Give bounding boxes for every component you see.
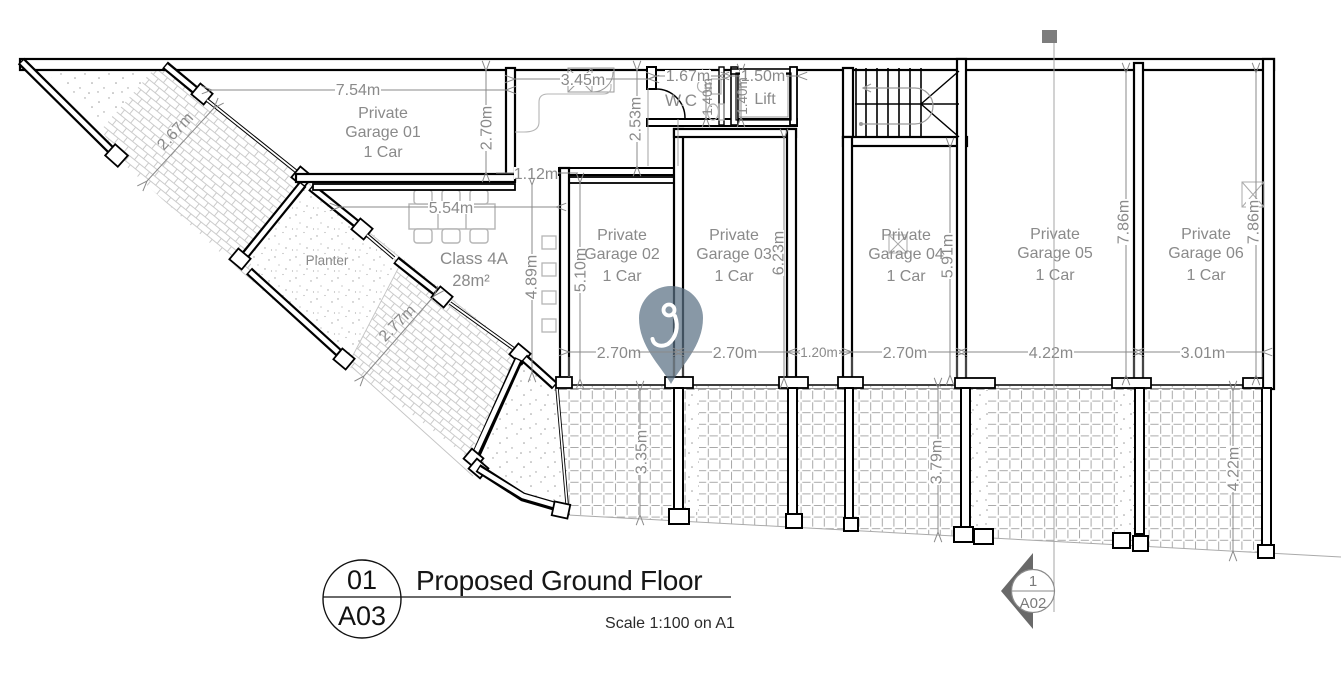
svg-text:2.70m: 2.70m — [883, 345, 927, 362]
svg-text:W.C: W.C — [665, 91, 697, 110]
svg-text:7.54m: 7.54m — [336, 82, 380, 99]
svg-text:4.89m: 4.89m — [524, 255, 541, 299]
svg-text:Proposed Ground Floor: Proposed Ground Floor — [416, 565, 702, 596]
svg-text:7.86m: 7.86m — [1246, 200, 1263, 244]
svg-text:5.54m: 5.54m — [429, 200, 473, 217]
svg-text:6.23m: 6.23m — [771, 231, 788, 275]
svg-text:Lift: Lift — [754, 91, 776, 108]
svg-text:3.45m: 3.45m — [561, 72, 605, 89]
svg-text:A02: A02 — [1020, 595, 1047, 612]
svg-text:Garage 03: Garage 03 — [696, 246, 772, 263]
svg-text:01: 01 — [347, 565, 377, 595]
svg-text:Private: Private — [1030, 226, 1080, 243]
svg-text:2.70m: 2.70m — [597, 345, 641, 362]
svg-text:Private: Private — [1181, 226, 1231, 243]
svg-text:1 Car: 1 Car — [886, 268, 926, 285]
svg-text:1.40m: 1.40m — [700, 78, 715, 116]
svg-text:Garage 02: Garage 02 — [584, 246, 660, 263]
svg-text:Garage 06: Garage 06 — [1168, 245, 1244, 262]
svg-text:1: 1 — [1029, 573, 1037, 590]
svg-text:Garage 01: Garage 01 — [345, 124, 421, 141]
svg-text:4.22m: 4.22m — [1226, 447, 1243, 491]
svg-text:Class 4A: Class 4A — [440, 249, 509, 268]
svg-text:1.40m: 1.40m — [735, 77, 750, 115]
svg-text:Scale 1:100 on A1: Scale 1:100 on A1 — [605, 615, 735, 632]
svg-text:2.70m: 2.70m — [479, 106, 496, 150]
svg-text:Private: Private — [597, 227, 647, 244]
svg-text:1 Car: 1 Car — [1035, 267, 1075, 284]
svg-text:1.12m: 1.12m — [514, 166, 558, 183]
svg-text:Private: Private — [358, 105, 408, 122]
svg-text:4.22m: 4.22m — [1029, 345, 1073, 362]
svg-text:A03: A03 — [338, 601, 386, 631]
svg-text:Private: Private — [881, 227, 931, 244]
svg-text:1 Car: 1 Car — [1186, 267, 1226, 284]
svg-text:1 Car: 1 Car — [602, 268, 642, 285]
svg-text:1 Car: 1 Car — [714, 268, 754, 285]
svg-text:2.70m: 2.70m — [713, 345, 757, 362]
svg-text:1.20m: 1.20m — [800, 345, 838, 360]
svg-text:3.79m: 3.79m — [929, 440, 946, 484]
svg-text:3.35m: 3.35m — [634, 430, 651, 474]
svg-text:1 Car: 1 Car — [363, 144, 403, 161]
svg-text:Planter: Planter — [306, 253, 349, 268]
svg-text:Garage 05: Garage 05 — [1017, 245, 1093, 262]
svg-text:28m²: 28m² — [452, 272, 490, 290]
svg-text:Garage 04: Garage 04 — [868, 246, 944, 263]
svg-text:7.86m: 7.86m — [1116, 200, 1133, 244]
svg-text:3.01m: 3.01m — [1181, 345, 1225, 362]
svg-text:Private: Private — [709, 227, 759, 244]
svg-text:2.53m: 2.53m — [628, 97, 645, 141]
